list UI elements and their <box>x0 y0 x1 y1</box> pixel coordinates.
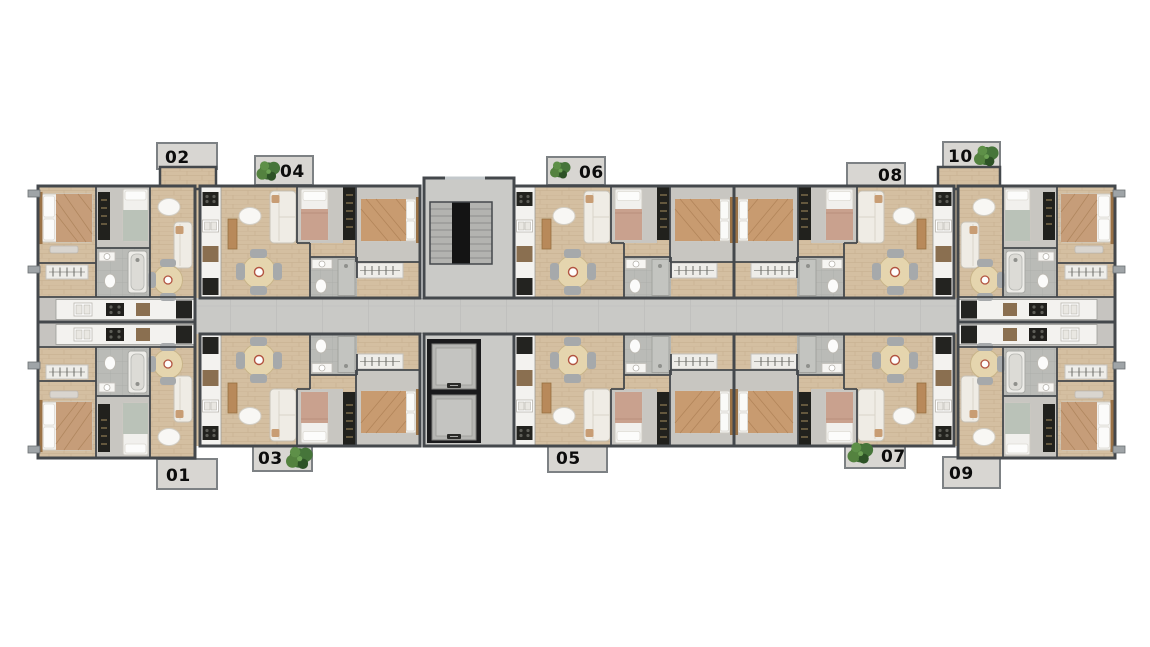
unit-label-02: 02 <box>165 148 190 168</box>
elevator-core <box>424 334 514 446</box>
unit-label-03: 03 <box>258 449 283 469</box>
unit-07-floorplan <box>734 334 954 448</box>
unit-10-floorplan <box>958 185 1117 323</box>
unit-01-floorplan <box>37 322 196 460</box>
unit-label-04: 04 <box>280 162 305 182</box>
floor-plan-canvas: 01 02 03 04 05 06 07 08 09 10 <box>0 0 1150 647</box>
elevator-1 <box>432 344 476 389</box>
unit-label-09: 09 <box>949 464 974 484</box>
unit-label-06: 06 <box>579 163 604 183</box>
floor-plan-svg: 01 02 03 04 05 06 07 08 09 10 <box>0 0 1150 647</box>
unit-09-floorplan <box>958 322 1117 460</box>
unit-04-floorplan <box>200 185 420 299</box>
corridor <box>195 298 958 334</box>
unit-label-07: 07 <box>881 447 906 467</box>
elevator-2 <box>432 395 476 440</box>
unit-02-floorplan <box>37 185 196 323</box>
unit-05-floorplan <box>514 334 734 448</box>
unit-label-10: 10 <box>948 147 973 167</box>
stairwell <box>424 177 514 299</box>
unit-06-floorplan <box>514 185 734 299</box>
unit-label-05: 05 <box>556 449 581 469</box>
unit-label-08: 08 <box>878 166 903 186</box>
unit-label-01: 01 <box>166 466 191 486</box>
unit-03-floorplan <box>200 334 420 448</box>
unit-08-floorplan <box>734 185 954 299</box>
